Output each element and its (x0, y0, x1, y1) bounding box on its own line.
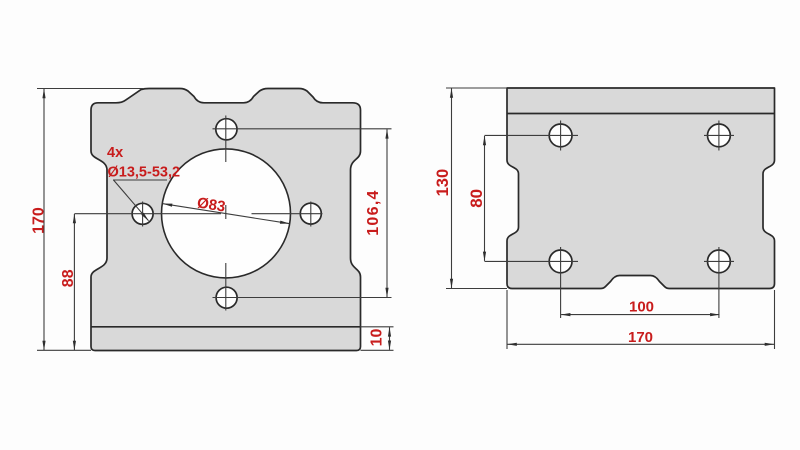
svg-text:170: 170 (628, 329, 653, 346)
svg-text:80: 80 (467, 189, 486, 208)
svg-text:10: 10 (369, 329, 386, 347)
svg-text:Ø13,5-53,2: Ø13,5-53,2 (108, 165, 181, 181)
svg-text:170: 170 (31, 207, 48, 234)
svg-text:88: 88 (60, 269, 77, 287)
svg-text:106,4: 106,4 (365, 189, 382, 236)
svg-text:100: 100 (629, 299, 654, 316)
svg-text:130: 130 (434, 169, 452, 197)
svg-text:4x: 4x (107, 145, 123, 161)
